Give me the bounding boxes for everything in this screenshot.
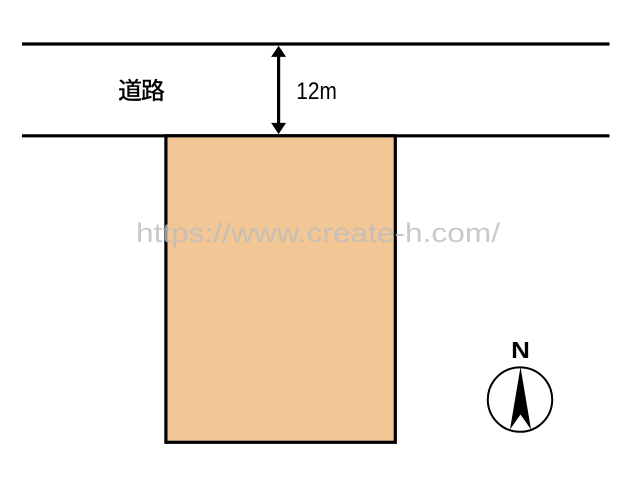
svg-text:N: N bbox=[511, 338, 530, 363]
svg-text:https://www.create-h.com/: https://www.create-h.com/ bbox=[136, 218, 501, 248]
svg-text:12m: 12m bbox=[296, 78, 337, 105]
